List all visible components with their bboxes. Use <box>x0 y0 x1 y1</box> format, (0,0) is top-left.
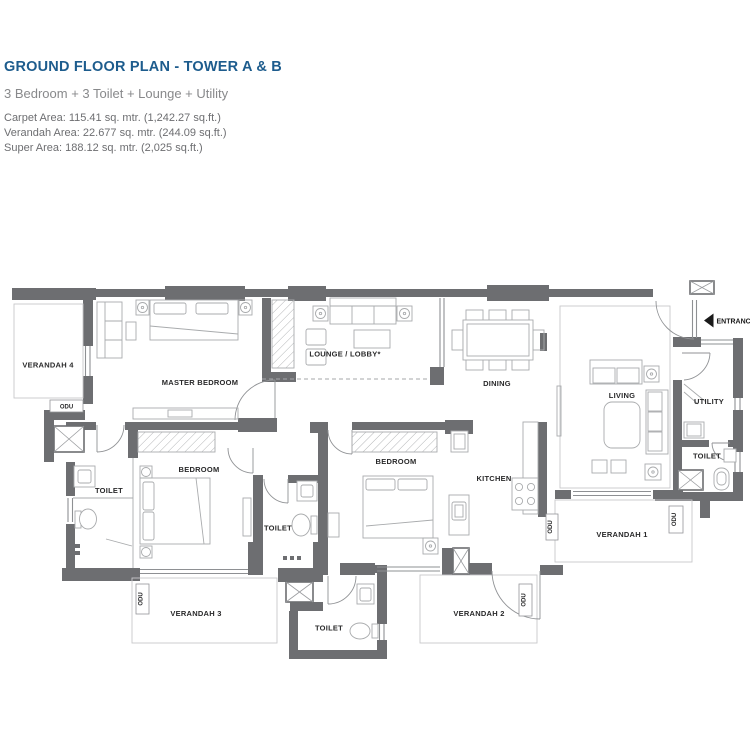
label-toilet-4: TOILET <box>693 452 721 461</box>
label-master-bedroom: MASTER BEDROOM <box>162 378 238 387</box>
label-utility: UTILITY <box>694 397 724 406</box>
utility-fixtures <box>684 384 706 438</box>
label-verandah3: VERANDAH 3 <box>170 609 221 618</box>
entrance-label: ENTRANCE <box>717 319 750 326</box>
page-title: GROUND FLOOR PLAN - TOWER A & B <box>4 59 282 75</box>
label-verandah2: VERANDAH 2 <box>453 609 504 618</box>
label-toilet-3: TOILET <box>315 624 343 633</box>
label-verandah1: VERANDAH 1 <box>596 530 647 539</box>
verandah-area-line: Verandah Area: 22.677 sq. mtr. (244.09 s… <box>4 126 227 141</box>
super-area-line: Super Area: 188.12 sq. mtr. (2,025 sq.ft… <box>4 141 227 156</box>
plan-subtitle: 3 Bedroom + 3 Toilet + Lounge + Utility <box>4 86 228 101</box>
label-toilet-2: TOILET <box>264 524 292 533</box>
label-kitchen: KITCHEN <box>476 474 511 483</box>
odu-label-verandah2: ODU <box>522 593 528 606</box>
floor-plan-page: GROUND FLOOR PLAN - TOWER A & B 3 Bedroo… <box>0 0 750 750</box>
odu-label-kitchen: ODU <box>548 520 554 533</box>
label-bedroom-2: BEDROOM <box>376 457 417 466</box>
shaft-x <box>286 582 313 602</box>
label-lounge: LOUNGE / LOBBY* <box>309 350 380 359</box>
toilet1-fixtures <box>73 466 133 555</box>
bedroom2-furniture <box>328 432 438 554</box>
master-bedroom-furniture <box>97 300 252 419</box>
label-dining: DINING <box>483 379 511 388</box>
odu-label-verandah4: ODU <box>60 405 73 411</box>
living-furniture <box>557 360 668 480</box>
label-bedroom-1: BEDROOM <box>179 465 220 474</box>
odu-label-verandah3: ODU <box>139 592 145 605</box>
windows <box>68 298 740 640</box>
area-summary: Carpet Area: 115.41 sq. mtr. (1,242.27 s… <box>4 111 227 156</box>
label-living: LIVING <box>609 391 636 400</box>
odu-label-verandah1: ODU <box>672 513 678 526</box>
label-verandah4: VERANDAH 4 <box>22 361 74 370</box>
entrance-marker: ENTRANCE <box>704 314 750 328</box>
shaft-x <box>54 426 84 452</box>
bedroom1-furniture <box>138 432 251 558</box>
floor-plan-drawing: ODU ODU ODU ODU ODU ENTRANCE VERANDAH 4 … <box>0 280 750 680</box>
dining-furniture <box>452 310 544 370</box>
shaft-x <box>690 281 714 294</box>
shaft-x <box>678 470 703 490</box>
shaft-x <box>453 548 469 574</box>
carpet-area-line: Carpet Area: 115.41 sq. mtr. (1,242.27 s… <box>4 111 227 126</box>
entrance-arrow-icon <box>704 314 714 328</box>
label-toilet-1: TOILET <box>95 486 123 495</box>
